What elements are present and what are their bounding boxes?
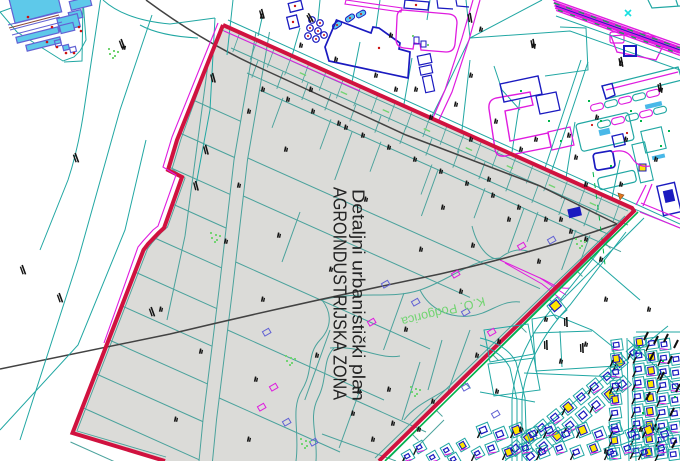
svg-text:Detaljni urbanistički plan: Detaljni urbanistički plan xyxy=(349,189,369,401)
svg-text:AGROINDUSTRIJSKA ZONA: AGROINDUSTRIJSKA ZONA xyxy=(330,187,351,401)
